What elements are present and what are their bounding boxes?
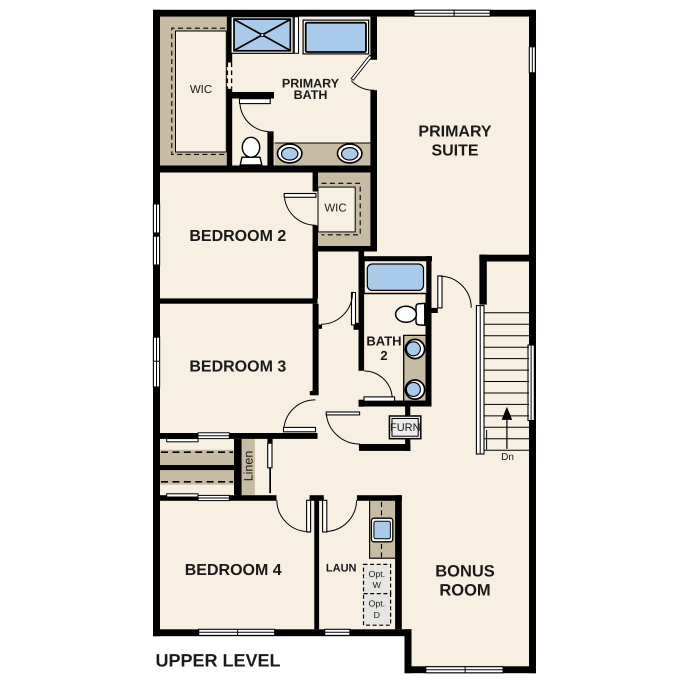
- svg-text:BONUS: BONUS: [435, 562, 495, 580]
- svg-text:PRIMARY: PRIMARY: [418, 123, 492, 140]
- svg-text:FURN: FURN: [390, 422, 421, 434]
- svg-text:Opt.: Opt.: [368, 569, 385, 579]
- svg-text:BEDROOM 2: BEDROOM 2: [189, 228, 286, 245]
- svg-text:ROOM: ROOM: [439, 582, 490, 600]
- svg-text:WIC: WIC: [324, 202, 346, 214]
- svg-text:2: 2: [380, 348, 387, 363]
- svg-text:UPPER LEVEL: UPPER LEVEL: [155, 650, 280, 670]
- svg-text:BATH: BATH: [366, 334, 401, 349]
- svg-text:LAUN: LAUN: [326, 563, 357, 575]
- svg-text:BEDROOM 3: BEDROOM 3: [189, 358, 286, 375]
- svg-text:SUITE: SUITE: [431, 143, 478, 160]
- svg-text:BEDROOM 4: BEDROOM 4: [185, 562, 282, 579]
- svg-text:Linen: Linen: [242, 451, 256, 482]
- svg-text:Opt.: Opt.: [368, 598, 385, 608]
- svg-text:BATH: BATH: [294, 88, 328, 102]
- svg-text:Dn: Dn: [501, 452, 514, 463]
- svg-text:W: W: [373, 580, 382, 590]
- svg-text:D: D: [374, 610, 380, 620]
- svg-text:WIC: WIC: [190, 84, 212, 96]
